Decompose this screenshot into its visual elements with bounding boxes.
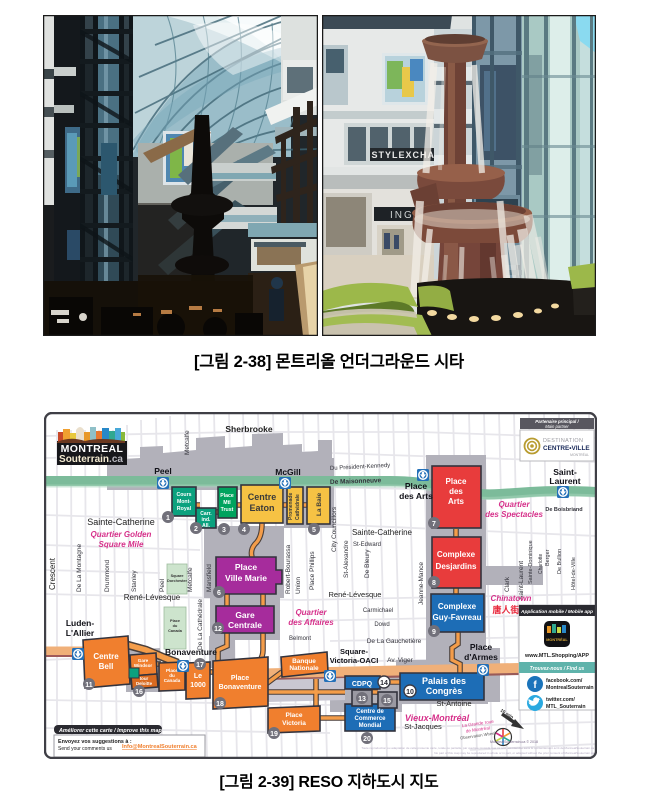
svg-text:Guy-Favreau: Guy-Favreau: [433, 613, 482, 622]
svg-text:6: 6: [217, 590, 221, 597]
svg-text:3: 3: [222, 527, 226, 534]
svg-text:facebook.com/: facebook.com/: [546, 678, 583, 684]
svg-text:Gare: Gare: [235, 610, 255, 620]
svg-text:Hôtel-de-Ville: Hôtel-de-Ville: [571, 557, 577, 590]
svg-text:Mansfield: Mansfield: [206, 564, 213, 592]
svg-text:Victoria-OACI: Victoria-OACI: [330, 656, 379, 665]
svg-text:MONTRÉAL: MONTRÉAL: [570, 452, 589, 457]
svg-text:4: 4: [242, 527, 246, 534]
svg-text:Belmont: Belmont: [289, 636, 311, 642]
svg-text:Complexe: Complexe: [438, 602, 477, 611]
svg-text:Canada: Canada: [168, 629, 183, 633]
svg-text:St-Edward: St-Edward: [353, 542, 381, 548]
svg-text:McGill: McGill: [275, 467, 301, 477]
svg-text:Charlotte: Charlotte: [538, 553, 544, 574]
svg-text:De Bullion: De Bullion: [557, 549, 563, 574]
svg-text:City Councillors: City Councillors: [331, 506, 338, 552]
svg-text:17: 17: [196, 662, 204, 669]
svg-text:www.MTL.Shopping/APP: www.MTL.Shopping/APP: [524, 653, 589, 659]
svg-text:18: 18: [216, 701, 224, 708]
svg-text:Eaton: Eaton: [249, 503, 274, 513]
svg-text:Banque: Banque: [292, 658, 316, 665]
svg-text:Square: Square: [171, 574, 184, 578]
svg-text:Av. Viger: Av. Viger: [387, 657, 413, 664]
svg-text:Peel: Peel: [154, 466, 172, 476]
svg-text:Place: Place: [470, 642, 492, 652]
svg-text:11: 11: [85, 682, 93, 689]
svg-text:唐人街: 唐人街: [492, 604, 519, 615]
svg-text:Union: Union: [295, 577, 302, 594]
svg-text:Info@MontrealSouterrain.ca: Info@MontrealSouterrain.ca: [122, 744, 198, 750]
svg-text:Main partner: Main partner: [545, 424, 569, 429]
svg-text:5: 5: [312, 527, 316, 534]
svg-text:DESTINATION: DESTINATION: [543, 438, 583, 444]
svg-text:twitter.com/: twitter.com/: [546, 697, 575, 703]
svg-text:Bonaventure: Bonaventure: [219, 684, 262, 691]
svg-text:Stanley: Stanley: [131, 570, 138, 592]
svg-text:2: 2: [194, 526, 198, 533]
svg-text:Place: Place: [235, 562, 257, 572]
svg-text:Dowd: Dowd: [374, 622, 389, 628]
svg-text:Vieux-Montréal: Vieux-Montréal: [405, 713, 470, 723]
svg-text:Souterrain.ca: Souterrain.ca: [59, 454, 123, 465]
svg-text:Chinatown: Chinatown: [491, 594, 532, 603]
svg-text:Centre: Centre: [93, 652, 119, 661]
svg-text:Centre: Centre: [248, 492, 277, 502]
svg-text:15: 15: [383, 698, 391, 705]
svg-text:Sainte-Dominique: Sainte-Dominique: [528, 540, 534, 584]
svg-text:All.: All.: [202, 523, 210, 529]
svg-text:Congrès: Congrès: [426, 686, 463, 696]
svg-text:Carmichael: Carmichael: [363, 608, 393, 614]
svg-text:Quartier: Quartier: [498, 500, 530, 509]
svg-text:Trouvez-nous / Find us: Trouvez-nous / Find us: [530, 666, 585, 672]
svg-text:Cathédrale: Cathédrale: [295, 494, 301, 520]
svg-text:Place: Place: [220, 493, 234, 499]
svg-text:Promenade: Promenade: [288, 493, 294, 520]
svg-text:Drummond: Drummond: [104, 559, 111, 592]
svg-text:7: 7: [432, 521, 436, 528]
svg-text:Robert-Bourassa: Robert-Bourassa: [285, 544, 292, 594]
svg-text:Metcalfe: Metcalfe: [184, 430, 191, 455]
svg-text:Le: Le: [194, 673, 202, 680]
svg-text:Clark: Clark: [504, 576, 511, 592]
svg-text:14: 14: [380, 680, 388, 687]
svg-text:Trust: Trust: [221, 507, 234, 513]
svg-text:du: du: [173, 624, 178, 628]
svg-text:René-Lévesque: René-Lévesque: [124, 593, 181, 602]
svg-text:Améliorer cette carte / Improv: Améliorer cette carte / Improve this map: [58, 728, 162, 734]
svg-text:MontrealSouterrain: MontrealSouterrain: [546, 685, 594, 691]
svg-text:Send your comments us: Send your comments us: [58, 746, 112, 752]
svg-text:Square Mile: Square Mile: [99, 540, 144, 549]
svg-text:9: 9: [432, 629, 436, 636]
svg-text:Place: Place: [286, 712, 303, 719]
svg-text:1: 1: [166, 515, 170, 522]
svg-text:Luden-: Luden-: [66, 618, 94, 628]
svg-text:Place: Place: [405, 481, 427, 491]
svg-text:Laurent: Laurent: [549, 476, 580, 486]
svg-text:Windsor: Windsor: [134, 663, 153, 668]
svg-text:13: 13: [358, 696, 366, 703]
svg-text:Ville Marie: Ville Marie: [225, 573, 267, 583]
svg-text:Complexe: Complexe: [437, 550, 476, 559]
svg-text:No part of this map may be rep: No part of this map may be reproduced in…: [434, 751, 594, 755]
svg-text:12: 12: [214, 626, 222, 633]
svg-text:d'Armes: d'Armes: [464, 652, 498, 662]
svg-text:Quartier: Quartier: [295, 608, 327, 617]
svg-text:Palais des: Palais des: [422, 676, 466, 686]
svg-text:Jeanne-Mance: Jeanne-Mance: [418, 562, 425, 605]
svg-text:Place: Place: [170, 619, 180, 623]
svg-text:Place: Place: [446, 477, 467, 486]
svg-text:Mondial: Mondial: [359, 723, 382, 729]
svg-text:Place Phillips: Place Phillips: [309, 551, 316, 590]
svg-text:De La Gauchetière: De La Gauchetière: [367, 638, 422, 645]
svg-text:De La Montagne: De La Montagne: [76, 544, 83, 592]
svg-text:8: 8: [432, 580, 436, 587]
svg-text:Bell: Bell: [99, 662, 114, 671]
svg-text:Sherbrooke: Sherbrooke: [225, 424, 273, 434]
svg-text:Cours: Cours: [177, 492, 192, 498]
svg-text:Royal: Royal: [177, 506, 192, 512]
svg-text:St-Jacques: St-Jacques: [404, 722, 442, 731]
svg-text:Nationale: Nationale: [289, 665, 319, 672]
svg-text:René-Lévesque: René-Lévesque: [329, 590, 382, 599]
svg-text:des: des: [449, 487, 463, 496]
svg-text:des Arts: des Arts: [399, 491, 433, 501]
svg-text:des Affaires: des Affaires: [288, 618, 334, 627]
svg-text:Envoyez vos suggestions à :: Envoyez vos suggestions à :: [58, 739, 132, 745]
svg-text:1000: 1000: [190, 682, 206, 689]
svg-text:La Baie: La Baie: [316, 492, 323, 516]
svg-text:des Spectacles: des Spectacles: [485, 510, 543, 519]
svg-text:Square-: Square-: [340, 647, 368, 656]
svg-text:CDPQ: CDPQ: [352, 681, 373, 688]
svg-text:Sainte-Catherine: Sainte-Catherine: [87, 517, 155, 527]
svg-text:Application mobile / Mobile ap: Application mobile / Mobile app: [520, 609, 593, 615]
svg-text:MontrealSouterrain.ca © 2018: MontrealSouterrain.ca © 2018: [490, 740, 538, 744]
svg-text:Mont-: Mont-: [177, 499, 191, 505]
svg-text:Berger: Berger: [545, 549, 551, 566]
svg-text:De Bleury: De Bleury: [364, 549, 371, 578]
svg-text:16: 16: [135, 689, 143, 696]
svg-text:Canada: Canada: [164, 678, 181, 683]
svg-text:Bonaventure: Bonaventure: [165, 647, 217, 657]
svg-text:St-Antoine: St-Antoine: [436, 699, 471, 708]
svg-text:20: 20: [363, 736, 371, 743]
svg-text:Dorchester: Dorchester: [167, 579, 188, 583]
svg-text:Quartier Golden: Quartier Golden: [91, 530, 152, 539]
svg-text:Victoria: Victoria: [282, 720, 306, 727]
svg-text:Mtl: Mtl: [223, 500, 231, 506]
svg-text:Metcalfe: Metcalfe: [187, 567, 194, 592]
svg-text:L'Allier: L'Allier: [66, 628, 95, 638]
svg-text:Sainte-Catherine: Sainte-Catherine: [352, 528, 413, 537]
svg-text:De La Cathédrale: De La Cathédrale: [197, 599, 204, 650]
svg-text:Centrale: Centrale: [228, 620, 262, 630]
svg-text:Arts: Arts: [448, 497, 465, 506]
svg-text:MONTRÉAL: MONTRÉAL: [546, 637, 568, 642]
svg-text:10: 10: [406, 689, 414, 696]
svg-text:Crescent: Crescent: [48, 557, 57, 590]
svg-text:CENTRE•VILLE: CENTRE•VILLE: [543, 445, 590, 452]
svg-text:St-Alexandre: St-Alexandre: [343, 540, 350, 578]
svg-text:Peel: Peel: [159, 578, 166, 592]
svg-text:Desjardins: Desjardins: [436, 562, 477, 571]
svg-text:MTL_Souterrain: MTL_Souterrain: [546, 704, 586, 710]
svg-text:Toute reproduction ou adaptati: Toute reproduction ou adaptation de cett…: [361, 746, 594, 750]
svg-text:Commerce: Commerce: [354, 716, 386, 722]
svg-text:19: 19: [270, 731, 278, 738]
svg-text:Place: Place: [231, 675, 249, 682]
svg-text:De Boisbriand: De Boisbriand: [545, 507, 582, 513]
svg-text:Centre de: Centre de: [356, 709, 384, 715]
